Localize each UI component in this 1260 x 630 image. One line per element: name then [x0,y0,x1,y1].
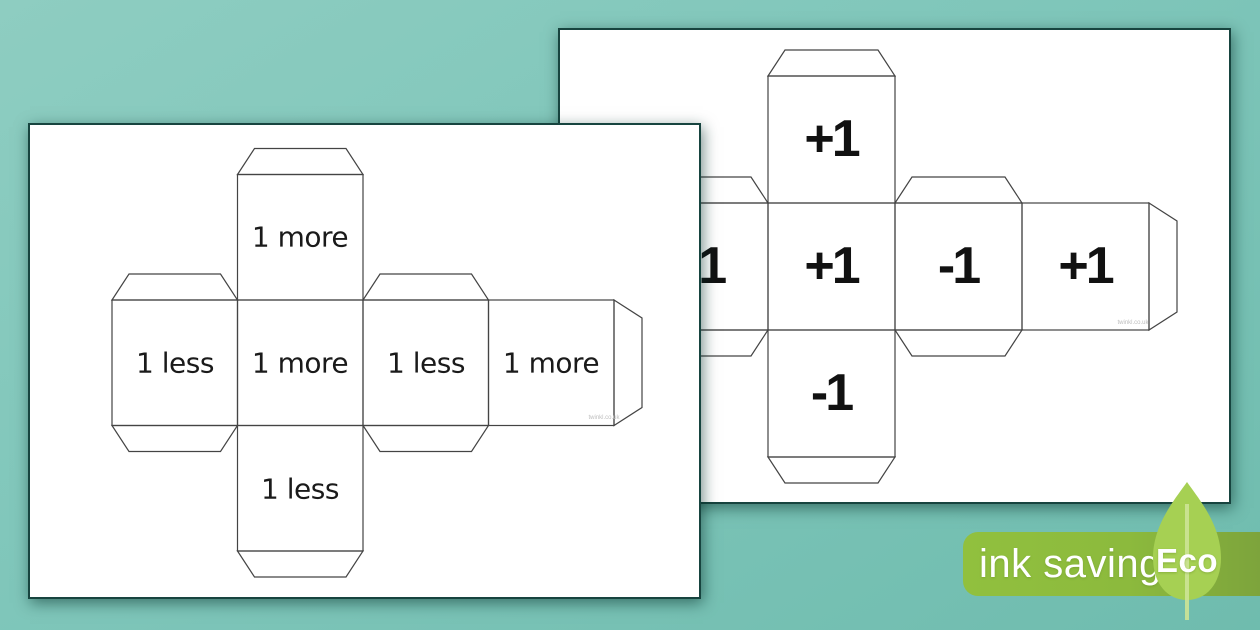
dice-face-front: 1 more [252,347,348,380]
dice-face-left: 1 less [136,347,214,380]
dice-face-top: 1 more [252,221,348,254]
dice-net-page-more-less: 1 more 1 less 1 more 1 less 1 more 1 les… [28,123,701,599]
eco-label: Eco [1156,542,1218,580]
watermark: twinkl.co.uk [588,415,619,421]
dice-face-back: +1 [1058,236,1111,296]
dice-face-bottom: -1 [811,363,851,423]
dice-face-right: 1 less [387,347,465,380]
dice-face-back: 1 more [503,347,599,380]
ink-saving-label: ink saving [979,542,1162,587]
dice-face-front: +1 [804,236,857,296]
dice-face-top: +1 [804,109,857,169]
teal-background: +1 -1 +1 -1 +1 -1 twinkl.co.uk [0,0,1260,630]
watermark: twinkl.co.uk [1117,320,1148,326]
dice-face-right: -1 [938,236,978,296]
dice-face-bottom: 1 less [261,473,339,506]
